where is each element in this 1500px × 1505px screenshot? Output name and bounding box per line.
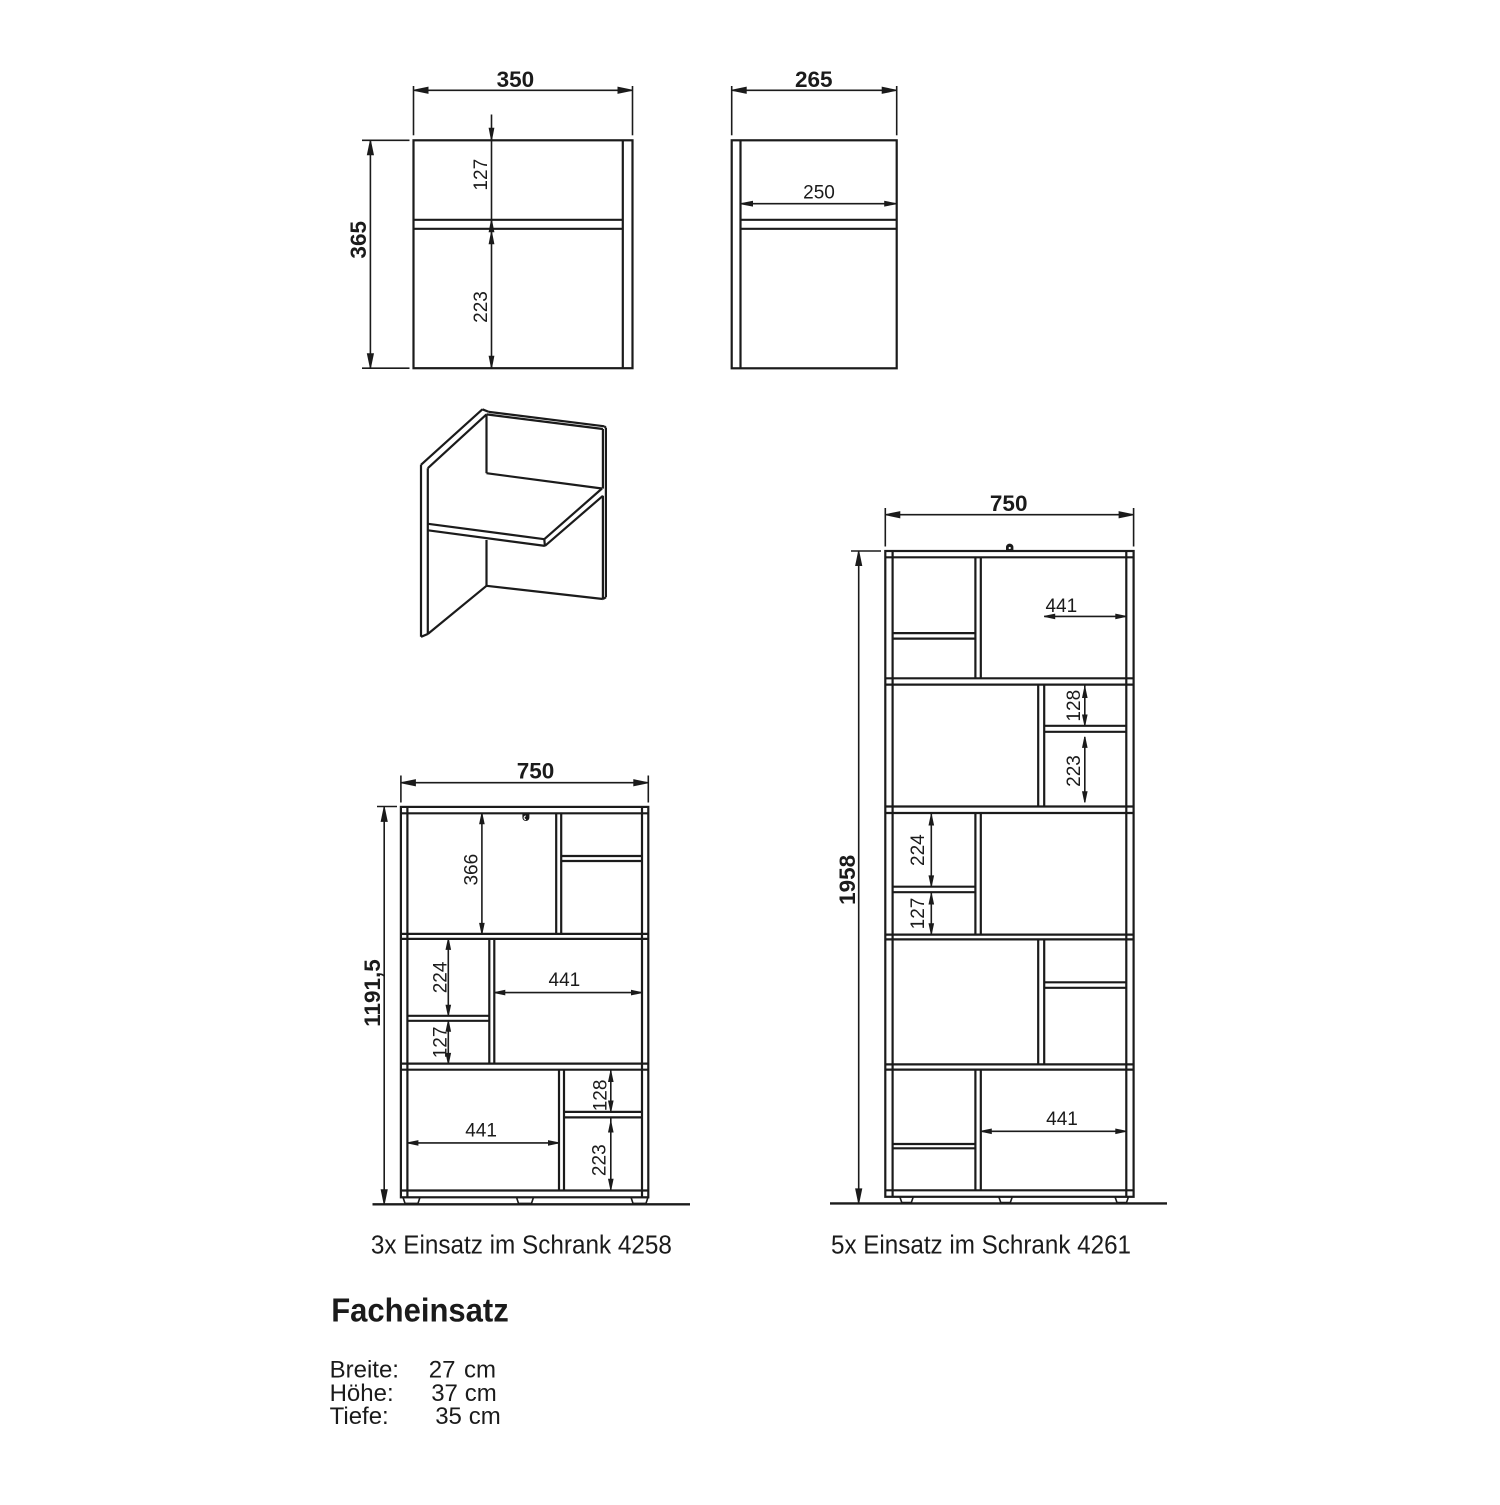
svg-text:cm: cm	[469, 1403, 501, 1430]
svg-text:441: 441	[1045, 596, 1077, 617]
svg-text:441: 441	[1046, 1109, 1078, 1130]
svg-text:1191,5: 1191,5	[360, 959, 385, 1027]
svg-text:224: 224	[430, 961, 451, 993]
svg-text:441: 441	[549, 970, 581, 991]
svg-text:750: 750	[990, 491, 1028, 516]
svg-text:35: 35	[435, 1403, 462, 1430]
svg-text:128: 128	[1064, 690, 1085, 722]
svg-text:5x Einsatz im Schrank 4261: 5x Einsatz im Schrank 4261	[831, 1231, 1131, 1259]
svg-text:224: 224	[908, 834, 929, 866]
svg-text:265: 265	[795, 67, 833, 92]
svg-text:1958: 1958	[835, 855, 860, 905]
svg-text:Tiefe:: Tiefe:	[330, 1403, 389, 1430]
svg-text:223: 223	[471, 291, 492, 323]
svg-text:127: 127	[908, 898, 929, 930]
svg-text:441: 441	[465, 1120, 497, 1141]
svg-text:350: 350	[497, 67, 535, 92]
svg-text:Facheinsatz: Facheinsatz	[331, 1292, 509, 1329]
svg-text:750: 750	[517, 759, 555, 784]
svg-text:366: 366	[461, 854, 482, 886]
svg-text:127: 127	[430, 1027, 451, 1059]
svg-text:127: 127	[471, 159, 492, 191]
svg-text:128: 128	[590, 1080, 611, 1112]
svg-text:3x Einsatz im Schrank 4258: 3x Einsatz im Schrank 4258	[371, 1231, 672, 1259]
svg-text:365: 365	[346, 221, 371, 259]
svg-text:223: 223	[1064, 755, 1085, 787]
svg-text:250: 250	[803, 183, 835, 204]
svg-text:223: 223	[590, 1144, 611, 1176]
